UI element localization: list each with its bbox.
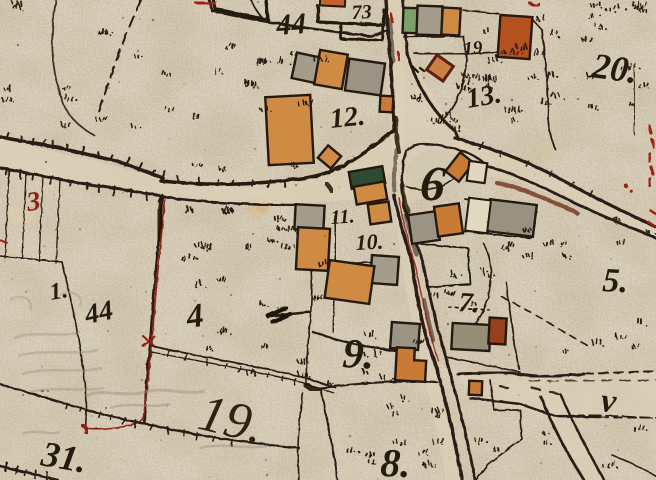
svg-text:19: 19: [463, 37, 484, 60]
svg-text:11.: 11.: [330, 205, 355, 229]
svg-text:12.: 12.: [328, 100, 366, 134]
svg-text:7.: 7.: [458, 287, 481, 319]
svg-text:5.: 5.: [602, 262, 629, 300]
svg-text:13.: 13.: [464, 78, 504, 115]
svg-text:20.: 20.: [589, 45, 640, 91]
svg-text:10.: 10.: [355, 229, 384, 255]
svg-text:8.: 8.: [380, 440, 412, 480]
svg-text:73: 73: [351, 1, 372, 24]
svg-text:6: 6: [418, 154, 448, 212]
svg-text:31.: 31.: [38, 433, 90, 480]
svg-text:44: 44: [274, 7, 307, 42]
